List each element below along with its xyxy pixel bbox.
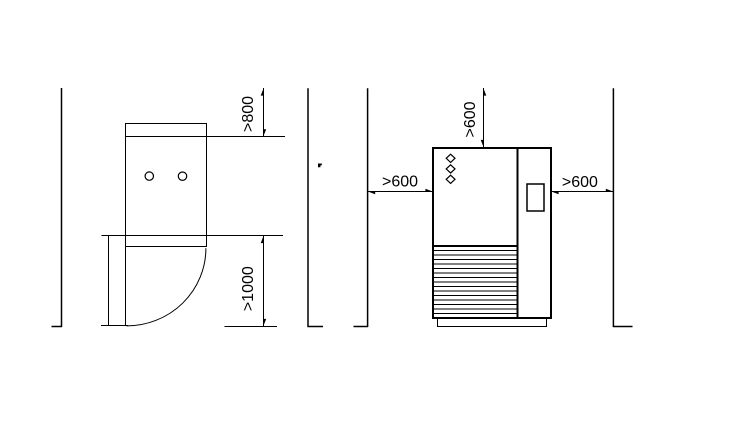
svg-text:>600: >600 xyxy=(382,174,418,191)
svg-text:>600: >600 xyxy=(462,101,479,137)
svg-text:>800: >800 xyxy=(240,96,257,132)
svg-text:>600: >600 xyxy=(562,174,598,191)
svg-text:>1000: >1000 xyxy=(240,266,257,311)
